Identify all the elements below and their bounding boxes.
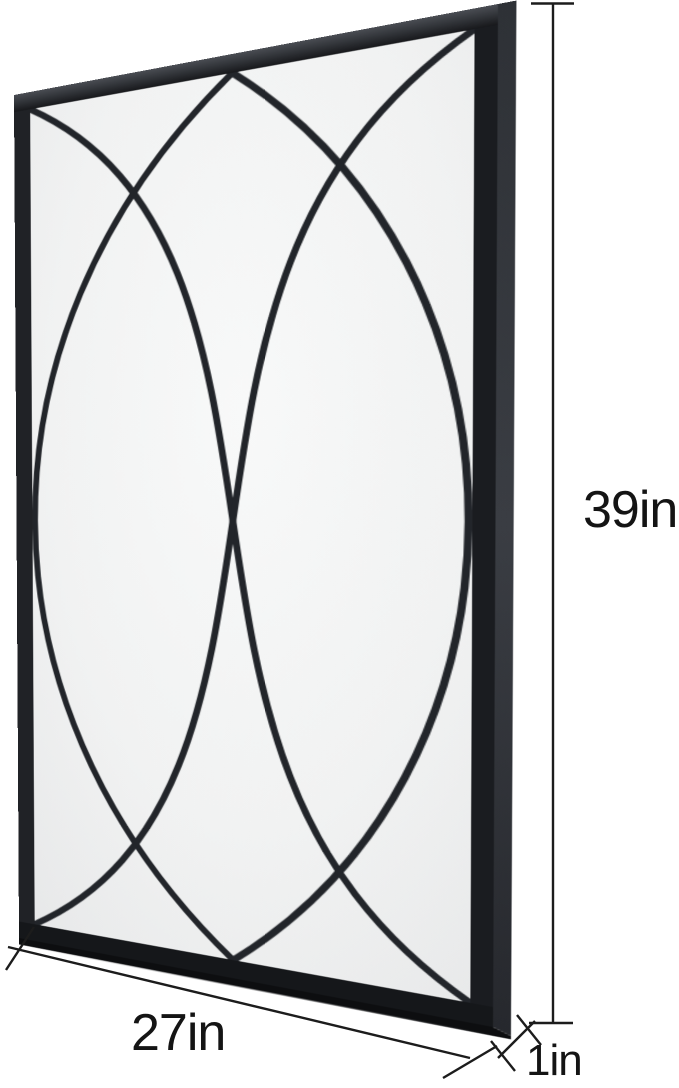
- height-dimension-label: 39in: [583, 484, 677, 536]
- mirror-product: [14, 0, 519, 1044]
- mirror-glass: [29, 28, 476, 1004]
- product-scene: 39in 27in 1in: [0, 0, 679, 1088]
- width-dimension-right-tick: [443, 1046, 497, 1078]
- depth-dimension-back-tick: [491, 1041, 515, 1071]
- mirror-drawing: [14, 0, 519, 1044]
- depth-dimension-label: 1in: [526, 1039, 582, 1083]
- width-dimension-label: 27in: [131, 1007, 225, 1059]
